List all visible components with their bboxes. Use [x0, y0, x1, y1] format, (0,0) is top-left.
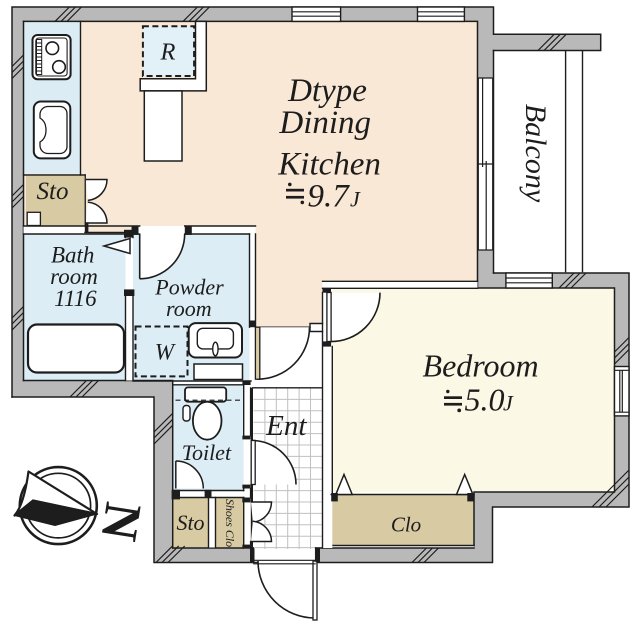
svg-text:Dtype: Dtype	[287, 73, 367, 109]
svg-text:W: W	[155, 340, 176, 365]
svg-text:Toilet: Toilet	[182, 440, 232, 465]
svg-text:Clo: Clo	[391, 513, 421, 537]
svg-text:Sto: Sto	[37, 178, 69, 205]
svg-text:J: J	[350, 187, 361, 212]
svg-text:1116: 1116	[54, 286, 97, 311]
svg-text:9.7: 9.7	[308, 179, 351, 215]
svg-text:Shoes Clo: Shoes Clo	[223, 499, 237, 547]
svg-text:Dining: Dining	[278, 105, 371, 141]
svg-text:room: room	[166, 296, 212, 321]
svg-text:Ent: Ent	[265, 410, 307, 442]
svg-text:Bedroom: Bedroom	[423, 348, 539, 384]
svg-text:5.0: 5.0	[465, 382, 505, 418]
svg-text:Kitchen: Kitchen	[277, 147, 381, 183]
svg-text:R: R	[160, 39, 176, 66]
svg-text:Balcony: Balcony	[519, 104, 552, 203]
svg-text:J: J	[503, 391, 514, 416]
svg-text:Sto: Sto	[176, 510, 204, 535]
